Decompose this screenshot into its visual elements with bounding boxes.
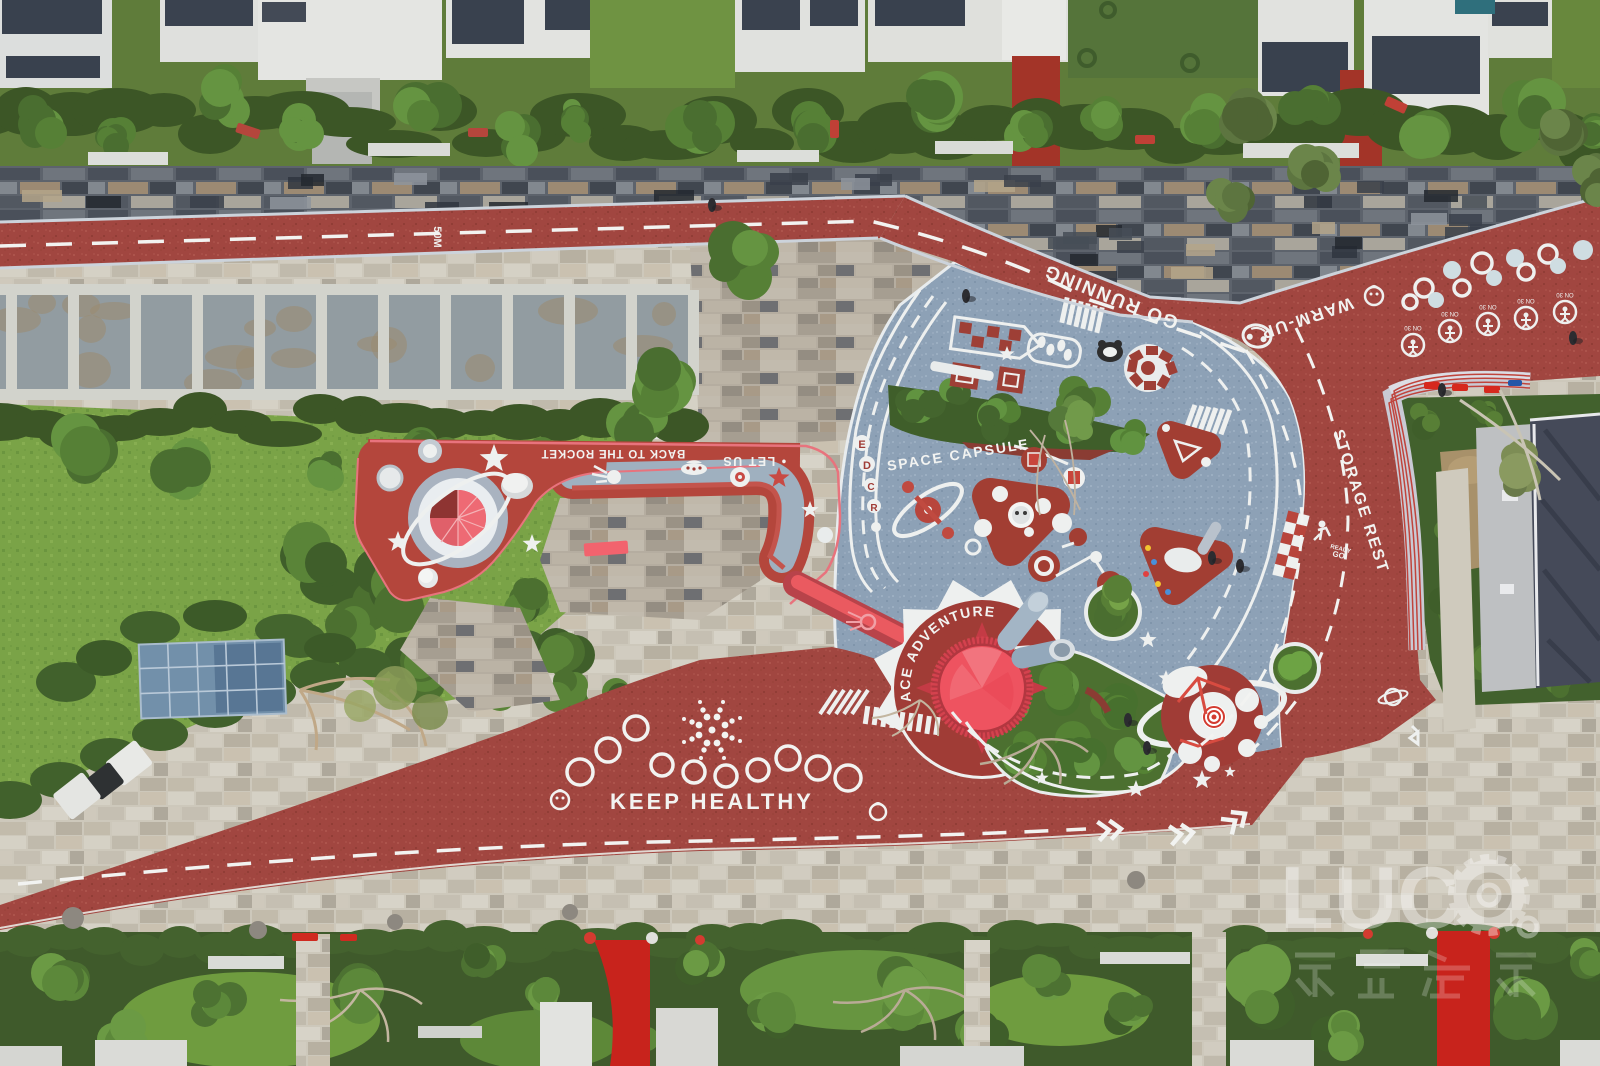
svg-text:R: R <box>870 503 878 514</box>
svg-text:C: C <box>867 482 874 493</box>
svg-text:ON 30: ON 30 <box>1517 297 1535 303</box>
svg-text:LUC: LUC <box>1280 848 1461 947</box>
svg-text:E: E <box>858 439 865 451</box>
svg-text:ON 30: ON 30 <box>1441 310 1459 316</box>
svg-text:ON 30: ON 30 <box>1556 291 1574 297</box>
svg-text:ON 30: ON 30 <box>1404 324 1422 330</box>
svg-text:D: D <box>863 460 871 472</box>
svg-text:BACK TO THE ROCKET: BACK TO THE ROCKET <box>541 447 686 459</box>
svg-text:KEEP HEALTHY: KEEP HEALTHY <box>610 789 814 814</box>
svg-text:• LET US: • LET US <box>722 454 786 468</box>
svg-text:50M: 50M <box>431 226 443 247</box>
svg-text:ON 30: ON 30 <box>1479 303 1497 309</box>
